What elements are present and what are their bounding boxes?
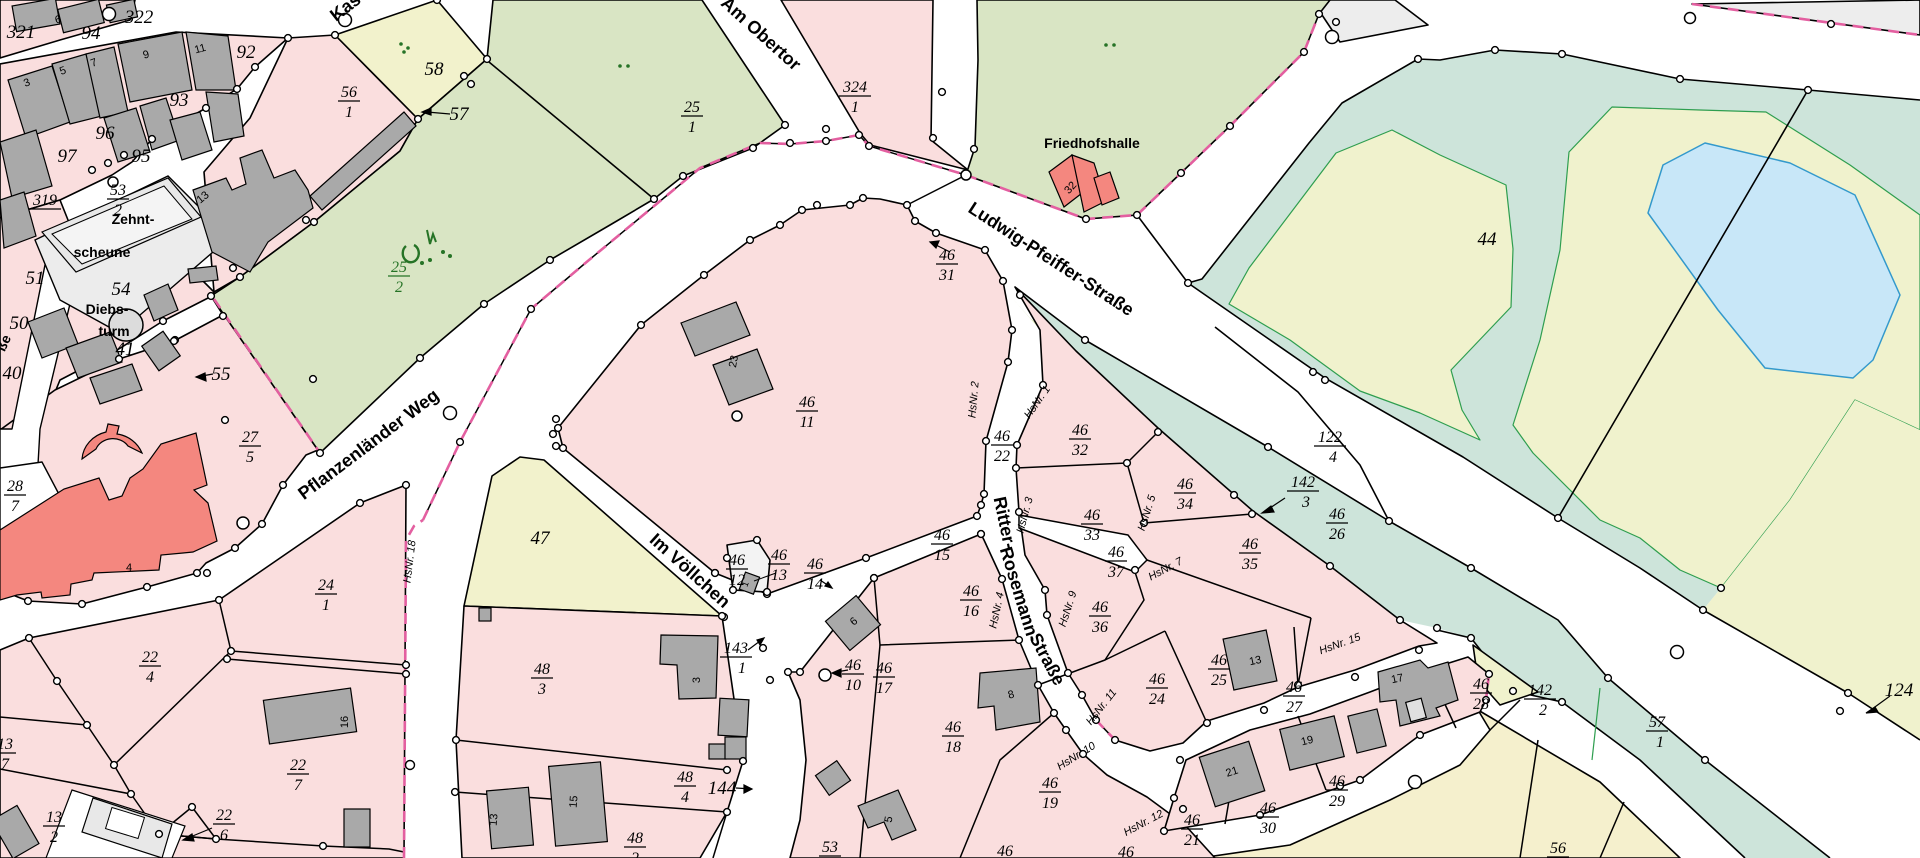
svg-text:35: 35 — [1241, 556, 1258, 573]
svg-text:50: 50 — [10, 313, 30, 334]
svg-text:322: 322 — [124, 7, 154, 28]
svg-text:57: 57 — [1649, 714, 1666, 731]
svg-text:319: 319 — [32, 192, 57, 209]
svg-text:1: 1 — [851, 99, 859, 116]
svg-text:22: 22 — [142, 649, 158, 666]
svg-text:Friedhofshalle: Friedhofshalle — [1044, 135, 1140, 151]
svg-text:25: 25 — [684, 99, 700, 116]
svg-text:7: 7 — [1, 756, 10, 773]
svg-text:46: 46 — [994, 428, 1010, 445]
svg-text:1: 1 — [688, 119, 696, 136]
svg-text:37: 37 — [1107, 564, 1125, 581]
svg-text:26: 26 — [1329, 526, 1345, 543]
svg-text:124: 124 — [1885, 680, 1914, 701]
svg-text:7: 7 — [294, 777, 303, 794]
svg-text:17: 17 — [1390, 672, 1404, 686]
svg-text:29: 29 — [1329, 793, 1345, 810]
svg-text:46: 46 — [1329, 773, 1345, 790]
svg-text:1: 1 — [738, 660, 746, 677]
svg-text:46: 46 — [1184, 812, 1200, 829]
svg-text:58: 58 — [425, 59, 445, 80]
svg-text:4: 4 — [126, 562, 132, 574]
svg-text:11: 11 — [800, 414, 815, 431]
svg-text:48: 48 — [677, 769, 693, 786]
svg-text:46: 46 — [939, 247, 955, 264]
svg-text:3: 3 — [691, 677, 703, 683]
svg-text:94: 94 — [82, 23, 102, 44]
svg-text:46: 46 — [1242, 536, 1258, 553]
svg-text:46: 46 — [876, 660, 892, 677]
svg-text:48: 48 — [627, 830, 643, 847]
svg-text:46: 46 — [1329, 506, 1345, 523]
svg-text:18: 18 — [945, 739, 961, 756]
svg-text:53: 53 — [822, 839, 838, 856]
svg-text:47: 47 — [531, 528, 552, 549]
svg-text:142: 142 — [1291, 474, 1315, 491]
svg-text:14: 14 — [807, 576, 823, 593]
svg-text:23: 23 — [727, 354, 741, 368]
svg-text:22: 22 — [216, 807, 232, 824]
svg-text:13: 13 — [488, 813, 501, 826]
svg-text:46: 46 — [1260, 800, 1276, 817]
svg-text:15: 15 — [934, 547, 950, 564]
svg-text:2: 2 — [50, 829, 58, 846]
svg-text:turm: turm — [98, 323, 129, 339]
svg-text:96: 96 — [96, 123, 116, 144]
svg-text:scheune: scheune — [74, 244, 131, 260]
svg-text:46: 46 — [934, 527, 950, 544]
svg-text:97: 97 — [58, 146, 79, 167]
svg-text:53: 53 — [110, 182, 126, 199]
svg-text:4: 4 — [1329, 449, 1337, 466]
svg-text:56: 56 — [1550, 840, 1566, 857]
svg-text:143: 143 — [724, 640, 748, 657]
svg-text:22: 22 — [290, 757, 306, 774]
svg-text:321: 321 — [6, 22, 36, 43]
svg-text:46: 46 — [1108, 544, 1124, 561]
svg-text:6: 6 — [220, 827, 228, 844]
svg-text:25: 25 — [391, 259, 407, 276]
svg-text:13: 13 — [771, 567, 787, 584]
svg-text:55: 55 — [212, 364, 231, 385]
svg-text:2: 2 — [1539, 702, 1547, 719]
svg-text:41: 41 — [116, 339, 135, 360]
svg-text:46: 46 — [963, 583, 979, 600]
svg-text:40: 40 — [3, 363, 23, 384]
svg-text:51: 51 — [26, 268, 45, 289]
svg-text:33: 33 — [1083, 527, 1100, 544]
svg-text:4: 4 — [681, 789, 689, 806]
svg-text:28: 28 — [7, 478, 23, 495]
svg-text:46: 46 — [1042, 775, 1058, 792]
svg-text:122: 122 — [1318, 429, 1342, 446]
svg-text:4: 4 — [146, 669, 154, 686]
svg-text:25: 25 — [1211, 672, 1227, 689]
svg-text:46: 46 — [945, 719, 961, 736]
svg-text:54: 54 — [112, 279, 132, 300]
svg-text:56: 56 — [341, 84, 357, 101]
svg-text:27: 27 — [242, 429, 259, 446]
svg-text:15: 15 — [568, 795, 581, 808]
svg-text:46: 46 — [1473, 676, 1489, 693]
svg-text:17: 17 — [876, 680, 893, 697]
svg-text:3: 3 — [1301, 494, 1310, 511]
svg-text:32: 32 — [1071, 442, 1088, 459]
svg-text:22: 22 — [994, 448, 1010, 465]
svg-text:1: 1 — [345, 104, 353, 121]
svg-text:31: 31 — [938, 267, 955, 284]
svg-text:24: 24 — [1149, 691, 1165, 708]
svg-text:142: 142 — [1528, 682, 1552, 699]
svg-text:95: 95 — [132, 146, 151, 167]
svg-text:10: 10 — [845, 677, 861, 694]
svg-text:Diebs-: Diebs- — [86, 301, 129, 317]
svg-text:46: 46 — [1177, 476, 1193, 493]
svg-text:46: 46 — [1149, 671, 1165, 688]
svg-text:1: 1 — [322, 597, 330, 614]
svg-text:7: 7 — [11, 498, 20, 515]
svg-text:34: 34 — [1176, 496, 1193, 513]
svg-text:19: 19 — [1042, 795, 1058, 812]
svg-text:46: 46 — [799, 394, 815, 411]
svg-text:46: 46 — [1118, 844, 1134, 858]
svg-text:46: 46 — [1084, 507, 1100, 524]
svg-text:2: 2 — [114, 202, 122, 219]
svg-text:16: 16 — [963, 603, 979, 620]
svg-text:46: 46 — [997, 843, 1013, 858]
svg-text:13: 13 — [1248, 654, 1262, 668]
svg-text:46: 46 — [807, 556, 823, 573]
svg-text:5: 5 — [246, 449, 254, 466]
svg-text:2: 2 — [395, 279, 403, 296]
svg-text:1: 1 — [1656, 734, 1664, 751]
svg-text:57: 57 — [450, 104, 471, 125]
svg-text:30: 30 — [1259, 820, 1276, 837]
svg-text:46: 46 — [729, 552, 745, 569]
svg-text:36: 36 — [1091, 619, 1108, 636]
svg-text:46: 46 — [845, 657, 861, 674]
svg-text:44: 44 — [1478, 229, 1498, 250]
svg-text:2: 2 — [631, 850, 639, 858]
svg-text:46: 46 — [1211, 652, 1227, 669]
svg-text:46: 46 — [771, 547, 787, 564]
svg-text:3: 3 — [537, 681, 546, 698]
svg-text:24: 24 — [318, 577, 334, 594]
svg-text:144: 144 — [708, 778, 737, 799]
svg-text:21: 21 — [1184, 832, 1200, 849]
svg-text:324: 324 — [842, 79, 867, 96]
svg-text:92: 92 — [237, 42, 257, 63]
svg-text:46: 46 — [1286, 679, 1302, 696]
svg-text:93: 93 — [170, 90, 189, 111]
svg-text:27: 27 — [1286, 699, 1303, 716]
svg-text:28: 28 — [1473, 696, 1489, 713]
svg-text:13: 13 — [46, 809, 62, 826]
svg-text:46: 46 — [1072, 422, 1088, 439]
svg-text:16: 16 — [339, 716, 351, 728]
svg-text:13: 13 — [0, 736, 13, 753]
svg-text:48: 48 — [534, 661, 550, 678]
svg-text:46: 46 — [1092, 599, 1108, 616]
